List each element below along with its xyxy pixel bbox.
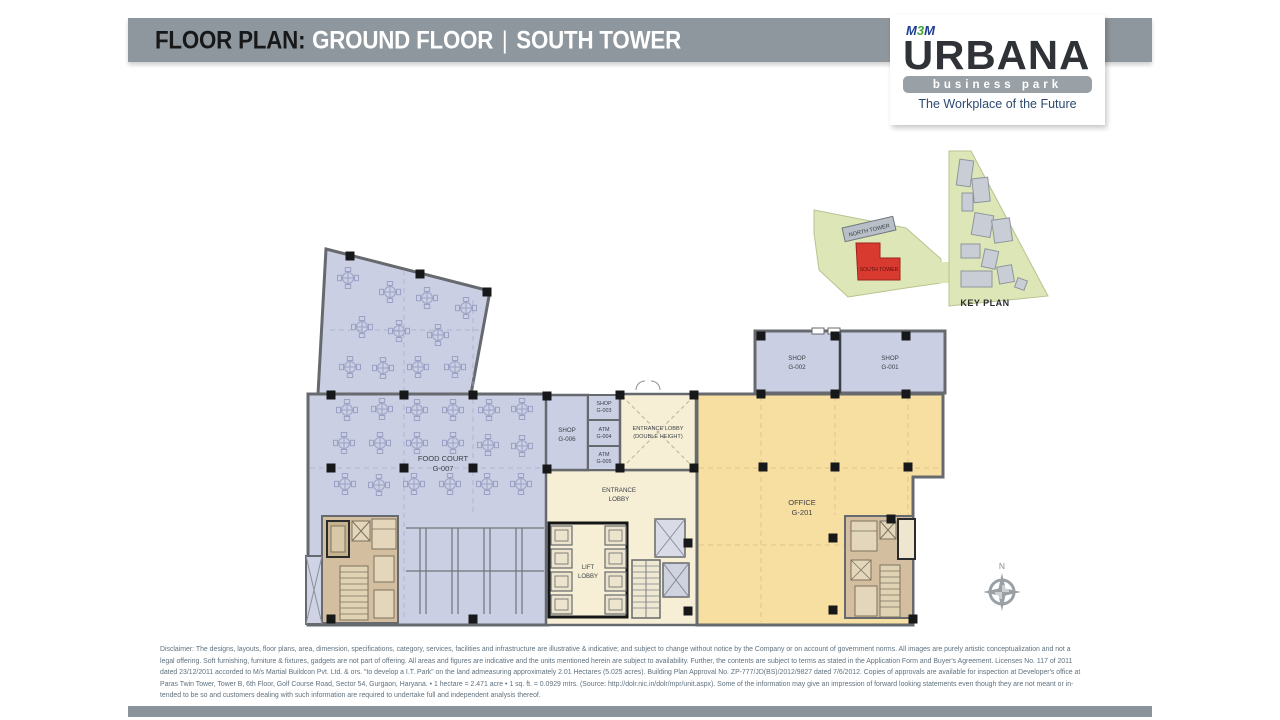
entrance-lobby-dh-label1: ENTRANCE LOBBY <box>633 426 684 432</box>
floor-plan: FOOD COURT G-007 SHOP G-006 SHOP G-003 A… <box>306 249 945 625</box>
shop-g001-id: G-001 <box>881 364 899 371</box>
shop-g003-id: G-003 <box>597 408 612 414</box>
shop-g006-label: SHOP <box>558 427 576 434</box>
business-park-bar: business park <box>903 76 1092 93</box>
entrance-lobby-dh-label2: (DOUBLE HEIGHT) <box>633 434 683 440</box>
svg-text:SOUTH TOWER: SOUTH TOWER <box>860 267 899 273</box>
shop-g002-id: G-002 <box>788 364 806 371</box>
disclaimer-text: Disclaimer: The designs, layouts, floor … <box>160 644 1140 702</box>
lift-lobby-label1: LIFT <box>582 565 595 571</box>
atm-g004-room <box>588 420 620 446</box>
shop-g001-label: SHOP <box>881 355 899 362</box>
shop-g006-id: G-006 <box>558 436 576 443</box>
compass-icon: N <box>983 561 1021 611</box>
shop-g002-label: SHOP <box>788 355 806 362</box>
atm-g005-room <box>588 446 620 470</box>
entrance-lobby-label1: ENTRANCE <box>602 487 636 494</box>
key-plan-label: KEY PLAN <box>960 298 1009 308</box>
compass-north-label: N <box>999 561 1005 571</box>
disclaimer-line: tended to be so and customers dealing wi… <box>160 690 1140 702</box>
disclaimer-line: Paras Twin Tower, Tower B, 6th Floor, Go… <box>160 679 1140 691</box>
shop-g003-label: SHOP <box>596 401 612 407</box>
footer-bar <box>128 706 1152 717</box>
disclaimer-line: dated 23/12/2011 accorded to M/s Martial… <box>160 667 1140 679</box>
atm-g005-label: ATM <box>599 452 610 458</box>
food-court-id: G-007 <box>433 464 454 473</box>
brand-logo-card: M3M URBANA business park The Workplace o… <box>890 15 1105 125</box>
office-label: OFFICE <box>788 498 816 507</box>
key-plan: NORTH TOWER SOUTH TOWER KEY PLAN <box>814 151 1048 308</box>
urbana-wordmark: URBANA <box>903 35 1109 75</box>
atm-g005-id: G-005 <box>597 459 612 465</box>
left-edge-stair <box>306 556 322 624</box>
service-core-left <box>322 516 398 623</box>
business-park-label: business park <box>933 79 1062 91</box>
entrance-lobby-dh-room <box>620 394 696 470</box>
atm-g004-id: G-004 <box>597 434 612 440</box>
entrance-lobby-label2: LOBBY <box>609 496 630 503</box>
shops-top-block <box>755 331 945 393</box>
brand-tagline: The Workplace of the Future <box>890 97 1105 111</box>
food-court-label: FOOD COURT <box>418 454 469 463</box>
disclaimer-line: Disclaimer: The designs, layouts, floor … <box>160 644 1140 656</box>
office-id: G-201 <box>792 508 813 517</box>
atm-g004-label: ATM <box>599 427 610 433</box>
disclaimer-line: legal offering. Soft furnishing, furnitu… <box>160 656 1140 668</box>
service-core-right <box>845 516 915 618</box>
key-plan-connector <box>933 262 950 283</box>
lift-lobby-label2: LOBBY <box>578 574 598 580</box>
